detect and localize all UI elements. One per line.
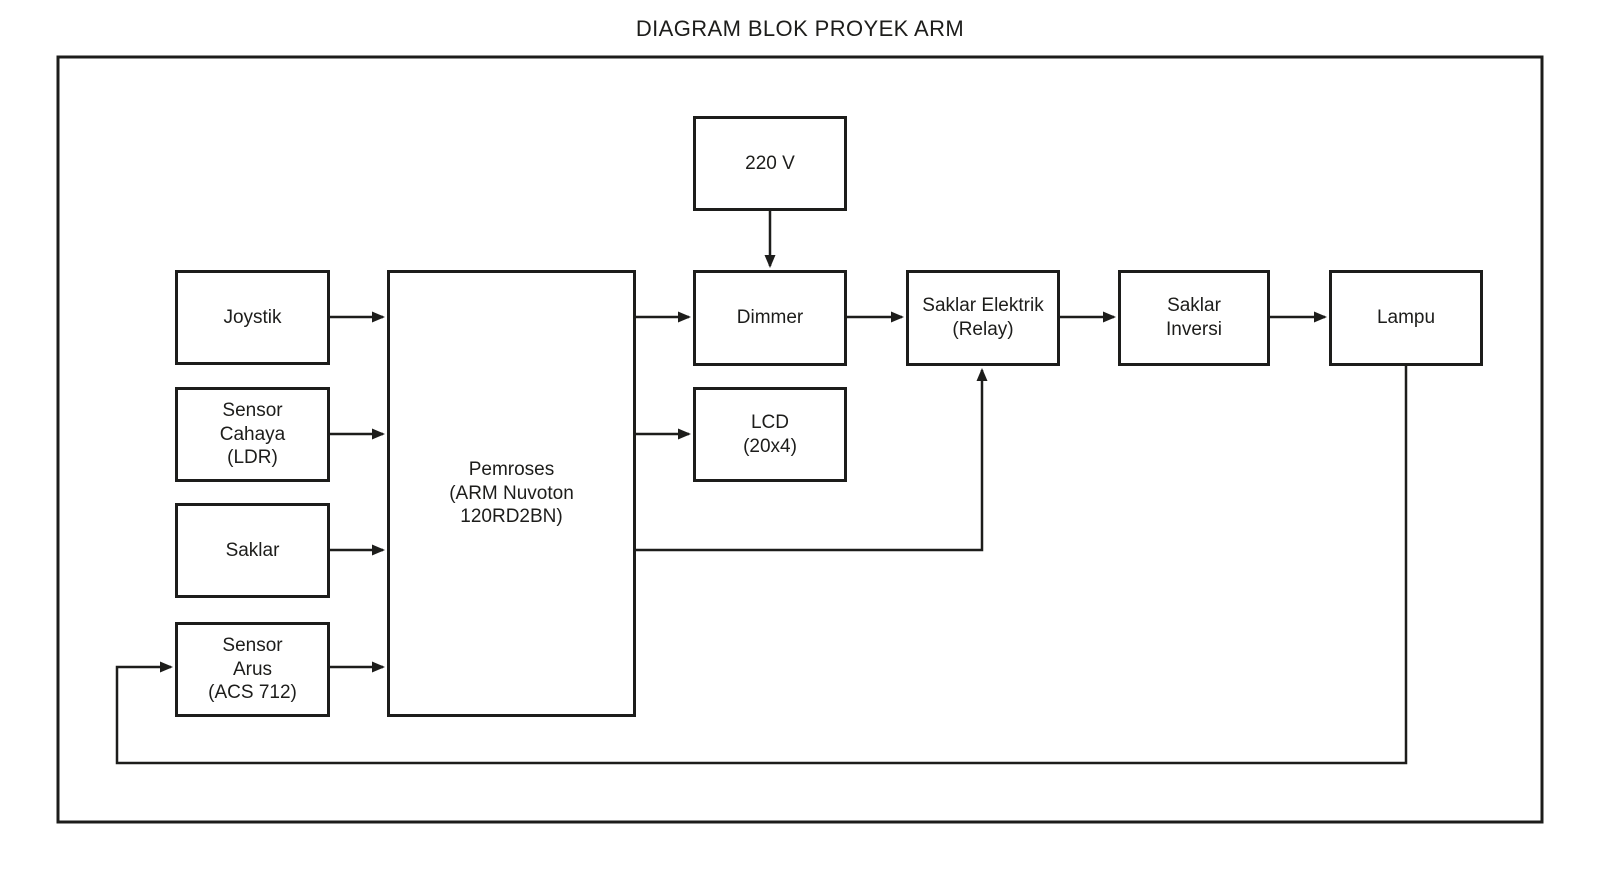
block-saklar: Saklar	[175, 503, 330, 598]
block-pemroses-arm-nuvoton: Pemroses (ARM Nuvoton 120RD2BN)	[387, 270, 636, 717]
block-sensor-cahaya-ldr: Sensor Cahaya (LDR)	[175, 387, 330, 482]
block-lampu: Lampu	[1329, 270, 1483, 366]
block-diagram-canvas: DIAGRAM BLOK PROYEK ARM 220 V Joystik Se…	[0, 0, 1600, 881]
block-saklar-inversi: Saklar Inversi	[1118, 270, 1270, 366]
block-joystik: Joystik	[175, 270, 330, 365]
block-saklar-elektrik-relay: Saklar Elektrik (Relay)	[906, 270, 1060, 366]
block-lcd-20x4: LCD (20x4)	[693, 387, 847, 482]
block-sensor-arus-acs712: Sensor Arus (ACS 712)	[175, 622, 330, 717]
block-220v: 220 V	[693, 116, 847, 211]
block-dimmer: Dimmer	[693, 270, 847, 366]
